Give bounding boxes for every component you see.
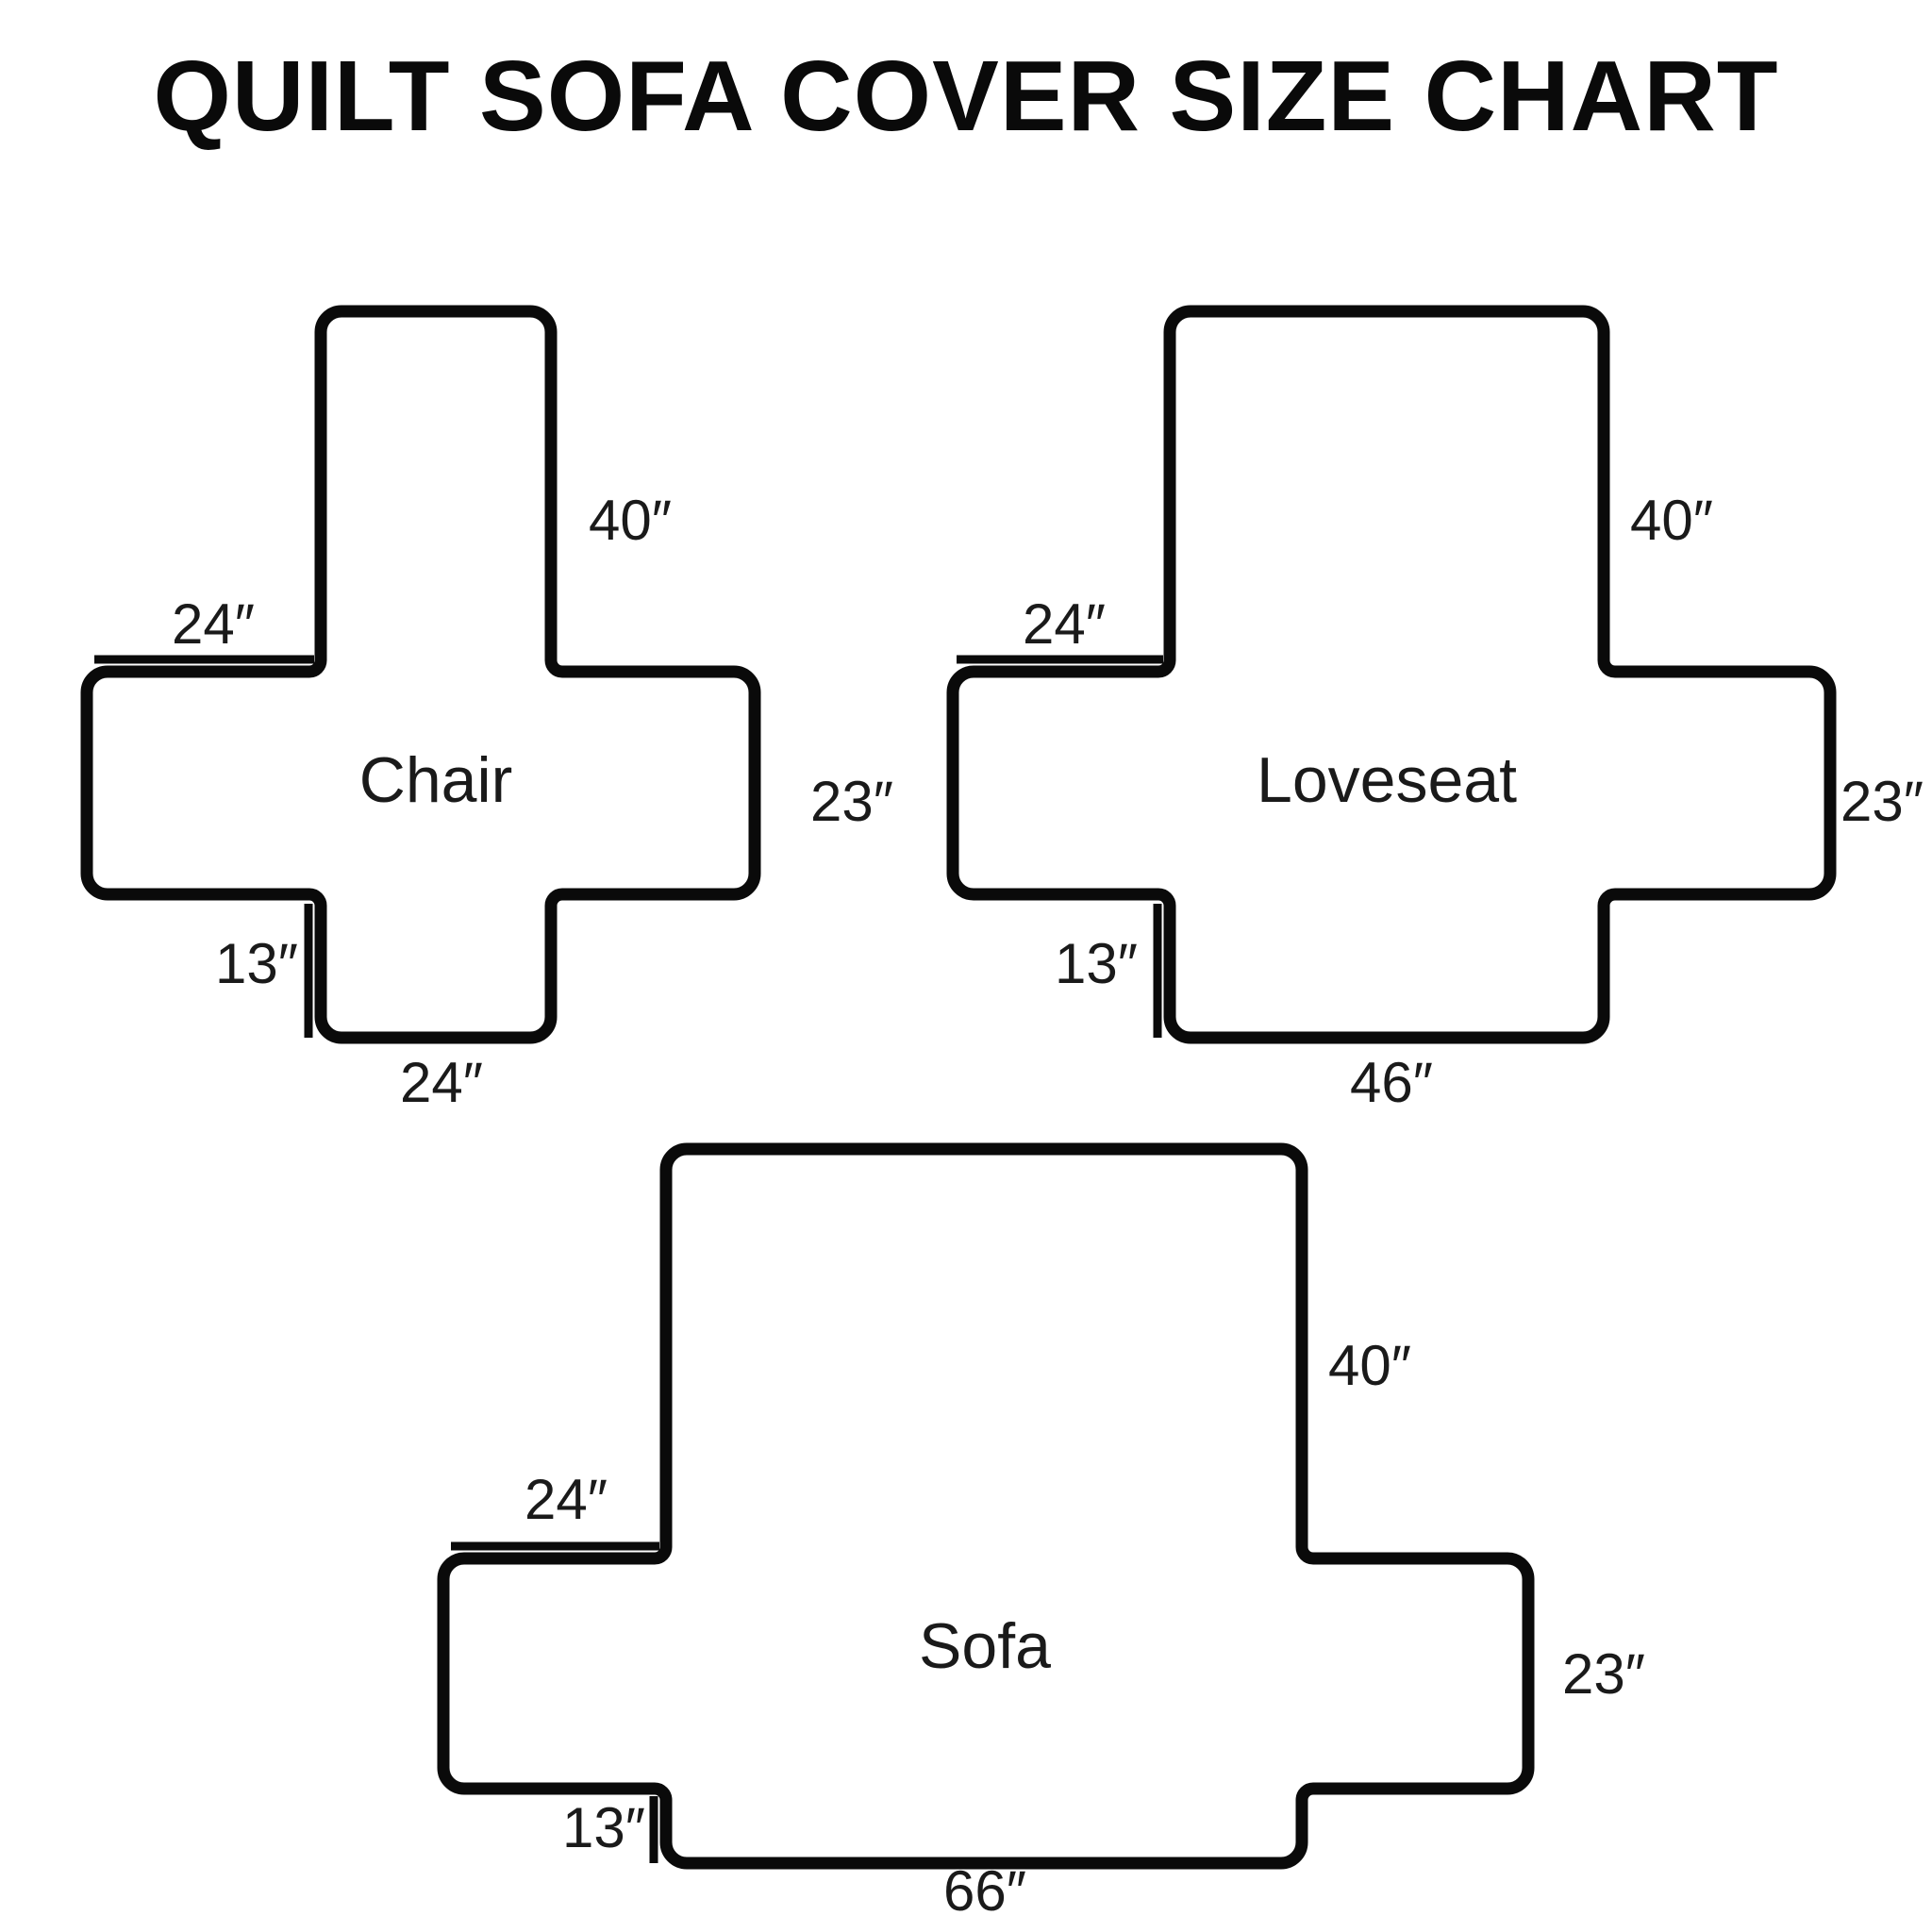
sofa-diagram: Sofa 40″ 24″ 23″ 13″ 66″ bbox=[443, 1149, 1645, 1923]
loveseat-name-label: Loveseat bbox=[1257, 744, 1517, 816]
chair-side-height-label: 23″ bbox=[810, 770, 893, 833]
loveseat-bottom-width-label: 46″ bbox=[1350, 1051, 1433, 1114]
sofa-back-height-label: 40″ bbox=[1328, 1334, 1411, 1397]
sofa-arm-width-label: 24″ bbox=[525, 1468, 608, 1531]
chair-name-label: Chair bbox=[359, 744, 513, 816]
chair-back-height-label: 40″ bbox=[589, 489, 672, 552]
chair-front-drop-label: 13″ bbox=[215, 932, 298, 995]
chair-arm-width-label: 24″ bbox=[172, 592, 255, 656]
sofa-bottom-width-label: 66″ bbox=[943, 1859, 1026, 1923]
loveseat-side-height-label: 23″ bbox=[1840, 770, 1924, 833]
sofa-side-height-label: 23″ bbox=[1562, 1642, 1645, 1706]
loveseat-arm-width-label: 24″ bbox=[1023, 592, 1106, 656]
chair-bottom-width-label: 24″ bbox=[400, 1051, 483, 1114]
loveseat-front-drop-label: 13″ bbox=[1055, 932, 1138, 995]
loveseat-diagram: Loveseat 40″ 24″ 23″ 13″ 46″ bbox=[953, 311, 1924, 1114]
sofa-name-label: Sofa bbox=[919, 1610, 1051, 1682]
loveseat-back-height-label: 40″ bbox=[1630, 489, 1713, 552]
size-diagram-canvas: Chair 40″ 24″ 23″ 13″ 24″ Loveseat 40″ 2… bbox=[0, 0, 1932, 1932]
size-chart-page: QUILT SOFA COVER SIZE CHART Chair 40″ 24… bbox=[0, 0, 1932, 1932]
sofa-front-drop-label: 13″ bbox=[562, 1796, 645, 1859]
chair-diagram: Chair 40″ 24″ 23″ 13″ 24″ bbox=[87, 311, 893, 1114]
chair-outline bbox=[87, 311, 755, 1038]
loveseat-outline bbox=[953, 311, 1830, 1038]
